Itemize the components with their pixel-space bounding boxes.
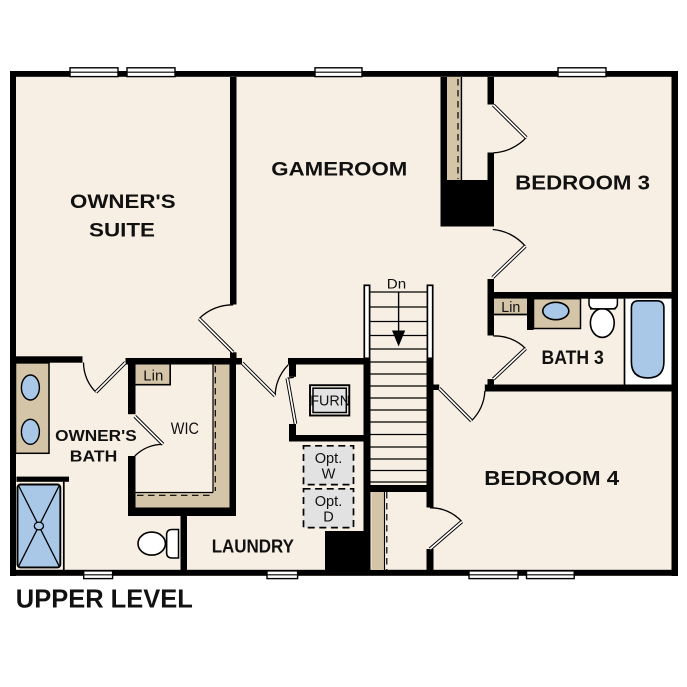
svg-text:BATH 3: BATH 3 [542, 348, 604, 369]
svg-text:D: D [323, 510, 334, 526]
svg-text:OWNER'S: OWNER'S [55, 428, 137, 445]
svg-text:WIC: WIC [171, 420, 199, 438]
svg-text:BEDROOM 3: BEDROOM 3 [515, 173, 650, 195]
svg-text:FURN: FURN [310, 392, 350, 409]
svg-text:BATH: BATH [70, 449, 118, 466]
svg-text:Dn: Dn [387, 276, 406, 292]
svg-text:Lin: Lin [501, 300, 520, 316]
svg-text:W: W [322, 467, 336, 483]
svg-text:OWNER'S: OWNER'S [70, 191, 176, 213]
svg-text:LAUNDRY: LAUNDRY [212, 536, 295, 557]
svg-text:GAMEROOM: GAMEROOM [271, 159, 407, 181]
svg-text:Opt.: Opt. [315, 494, 343, 510]
svg-text:SUITE: SUITE [89, 220, 155, 242]
svg-text:Lin: Lin [143, 368, 163, 384]
svg-text:Opt.: Opt. [315, 451, 343, 467]
svg-text:UPPER LEVEL: UPPER LEVEL [16, 585, 193, 613]
svg-text:BEDROOM 4: BEDROOM 4 [484, 468, 620, 490]
